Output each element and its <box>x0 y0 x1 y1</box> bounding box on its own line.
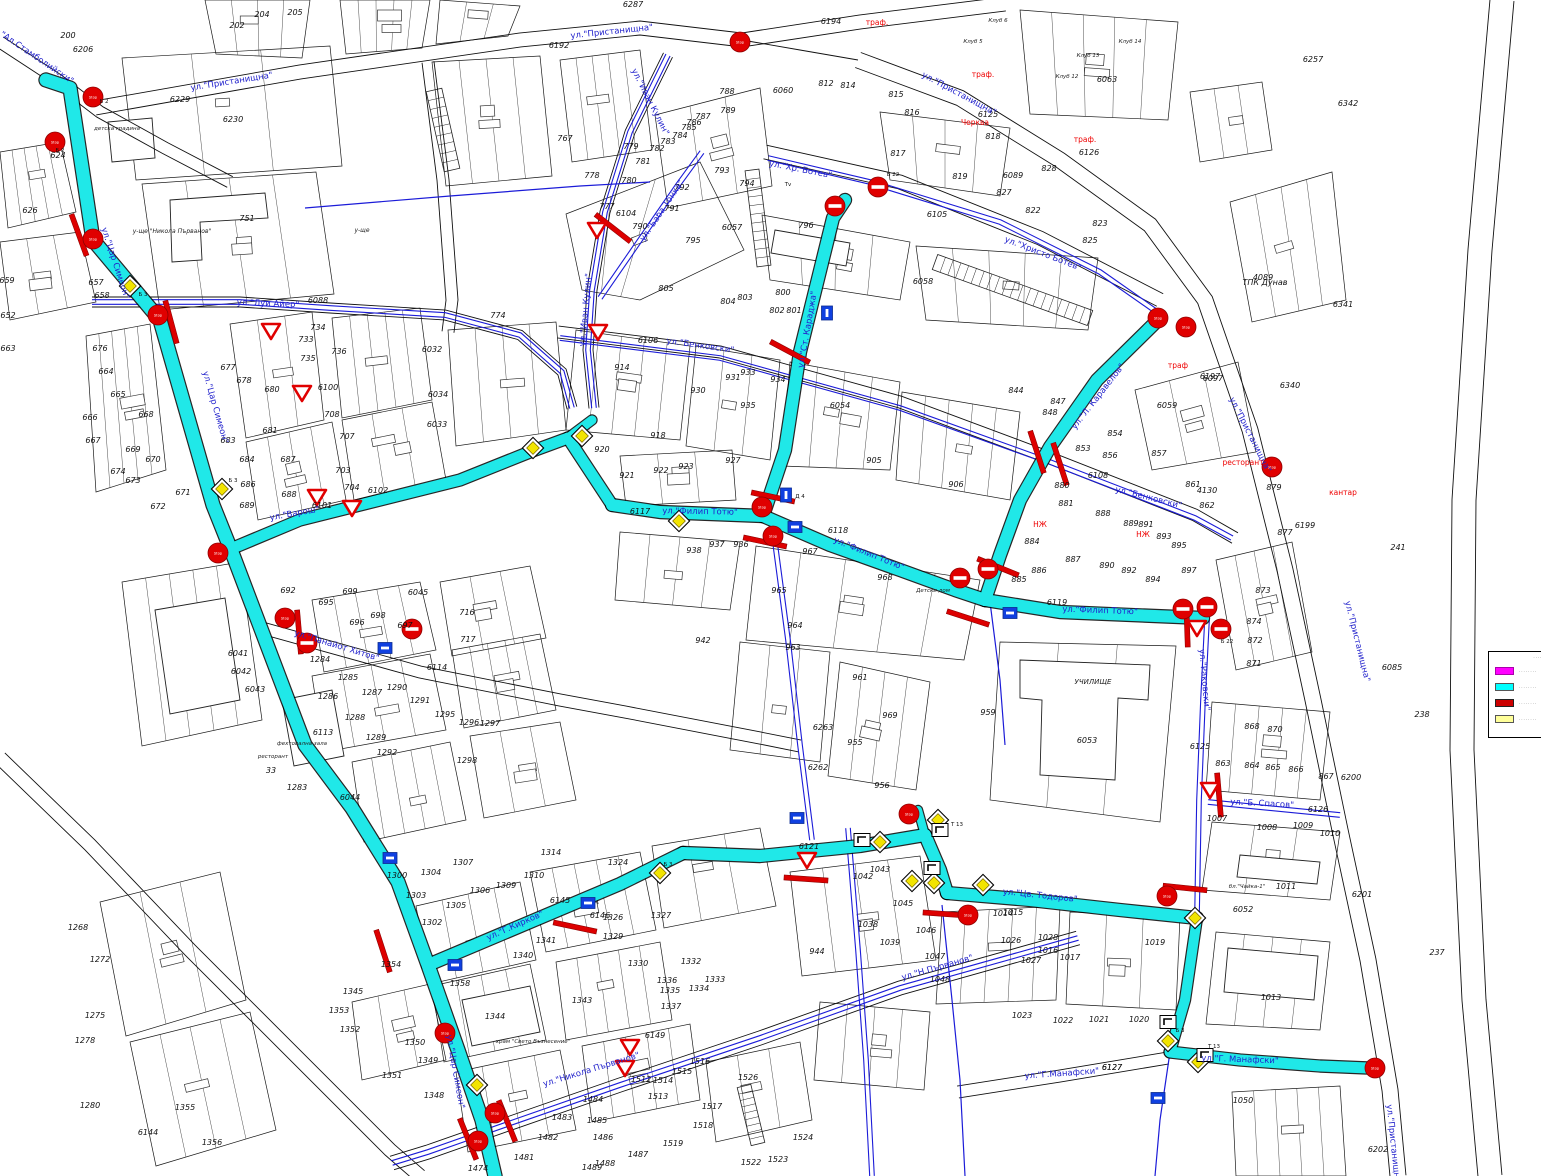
parcel-number: 6287 <box>623 0 644 9</box>
sign-code-label: Т 13 <box>950 822 964 828</box>
parcel-number: 6053 <box>1077 736 1097 745</box>
parcel-number: 1020 <box>1129 1015 1149 1024</box>
parcel-number: 1358 <box>450 979 470 988</box>
parcel-number: 697 <box>397 621 413 630</box>
parcel-number: 1332 <box>681 957 701 966</box>
parcel-number: 734 <box>310 323 325 332</box>
parcel-number: 1039 <box>880 938 900 947</box>
parcel-number: 6043 <box>245 685 265 694</box>
parcel-number: 668 <box>138 410 153 419</box>
red-annotation-label: траф. <box>1074 135 1097 144</box>
parcel-number: 6146 <box>590 911 610 920</box>
parcel-number: 1019 <box>1145 938 1165 947</box>
parcel-number: 1015 <box>1003 908 1023 917</box>
parcel-number: 1027 <box>1021 956 1042 965</box>
parcel-number: 969 <box>882 711 897 720</box>
parcel-number: 956 <box>874 781 889 790</box>
red-annotation-label: траф. <box>972 70 995 79</box>
parcel-number: 1016 <box>1038 946 1058 955</box>
parcel-number: 1517 <box>702 1102 723 1111</box>
parcel-number: 892 <box>1121 566 1136 575</box>
parcel-number: 6059 <box>1157 401 1177 410</box>
parcel-number: 684 <box>239 455 254 464</box>
legend-label: ········ <box>1519 717 1537 722</box>
parcel-number: 669 <box>125 445 140 454</box>
junction-info-sign-icon <box>924 862 940 875</box>
parcel-number: 914 <box>614 363 629 372</box>
parcel-number: 1513 <box>648 1092 668 1101</box>
parcel-number: 1008 <box>1257 823 1277 832</box>
parcel-number: 6262 <box>808 763 828 772</box>
street-name-label: ул."Раковски" <box>1196 649 1211 712</box>
svg-text:Stop: Stop <box>1154 316 1163 320</box>
svg-text:Stop: Stop <box>758 505 767 509</box>
parcel-number: 1314 <box>541 848 561 857</box>
building-footprint <box>1274 241 1294 254</box>
red-annotation-label: НЖ <box>1033 520 1047 529</box>
parcel-number: 716 <box>459 608 474 617</box>
building-footprint <box>587 94 610 105</box>
parcel-number: 857 <box>1151 449 1167 458</box>
parcel-number: 1343 <box>572 996 592 1005</box>
parcel-number: 863 <box>1215 759 1230 768</box>
building-footprint <box>1261 749 1287 759</box>
parcel-number: 931 <box>725 373 740 382</box>
parcel-number: 698 <box>370 611 385 620</box>
sign-code-label: В 22 <box>887 172 900 178</box>
legend-label: ········ <box>1519 685 1537 690</box>
parcel-number: 673 <box>125 476 140 485</box>
parcel-number: 827 <box>996 188 1012 197</box>
facility-label: у-ще "Никола Първанов" <box>132 228 212 235</box>
building-footprint <box>597 980 614 991</box>
parcel-number: 666 <box>82 413 97 422</box>
parcel-number: 6126 <box>1079 148 1099 157</box>
parcel-number: 1285 <box>338 673 358 682</box>
parcel-number: 6052 <box>1233 905 1253 914</box>
parcel-number: 955 <box>847 738 862 747</box>
svg-text:Stop: Stop <box>154 313 163 317</box>
parcel-number: 6206 <box>73 45 93 54</box>
parcel-number: 1341 <box>536 936 556 945</box>
parcel-number: 893 <box>1156 532 1171 541</box>
parcel-number: 670 <box>145 455 160 464</box>
parcel-number: 789 <box>720 106 735 115</box>
sign-code-label: Б 3 <box>1175 1028 1185 1034</box>
parcel-number: 1306 <box>470 886 490 895</box>
city-map-canvas[interactable]: StopStopStopStopStopStopStopStopStopStop… <box>0 0 1541 1176</box>
building-footprint <box>1281 1125 1303 1134</box>
building-footprint <box>955 444 972 455</box>
parcel-number: 1289 <box>366 733 386 742</box>
parcel-number: 6041 <box>228 649 248 658</box>
parcel-number: 1297 <box>480 719 501 728</box>
parcel-number: 802 <box>769 306 784 315</box>
parcel-number: 1482 <box>538 1133 558 1142</box>
svg-text:Stop: Stop <box>214 551 223 555</box>
parcel-number: 936 <box>733 540 748 549</box>
parcel-number: 1304 <box>421 868 441 877</box>
parcel-number: 4130 <box>1197 486 1217 495</box>
parcel-number: 873 <box>1255 586 1270 595</box>
parcel-number: 1310 <box>524 871 544 880</box>
legend-swatch-magenta <box>1495 667 1514 675</box>
parcel-number: 626 <box>22 206 37 215</box>
parcel-number: 1011 <box>1276 882 1296 891</box>
parcel-number: 805 <box>658 284 673 293</box>
parcel-number: 823 <box>1092 219 1107 228</box>
parcel-number: 6114 <box>427 663 447 672</box>
parcel-number: 848 <box>1042 408 1057 417</box>
parcel-number: 796 <box>798 221 813 230</box>
parcel-number: 1486 <box>593 1133 613 1142</box>
parcel-number: 828 <box>1041 164 1056 173</box>
building-footprint <box>378 10 402 21</box>
red-annotation-label: кантар <box>1329 488 1357 497</box>
parcel-number: 854 <box>1107 429 1122 438</box>
parcel-number: 964 <box>787 621 802 630</box>
parcel-number: 692 <box>280 586 295 595</box>
parcel-number: 874 <box>1246 617 1261 626</box>
facility-label: Клуб 6 <box>988 18 1008 24</box>
parcel-number: 1278 <box>75 1036 95 1045</box>
parcel-number: 933 <box>740 368 755 377</box>
parcel-number: 704 <box>344 483 359 492</box>
facility-label: фехтовална зала <box>277 741 328 747</box>
building-footprint <box>184 1079 209 1093</box>
parcel-number: 1350 <box>405 1038 425 1047</box>
parcel-number: 733 <box>298 335 313 344</box>
parcel-number: 6089 <box>1003 171 1023 180</box>
parcel-number: 6200 <box>1341 773 1361 782</box>
parcel-number: 817 <box>890 149 906 158</box>
parcel-number: 1275 <box>85 1011 105 1020</box>
parcel-block <box>100 872 246 1036</box>
parcel-number: 1010 <box>1320 829 1340 838</box>
parcel-number: 780 <box>621 176 636 185</box>
parcel-number: 689 <box>239 501 254 510</box>
parcel-number: 6121 <box>799 842 819 851</box>
parcel-number: 202 <box>229 21 244 30</box>
parcel-number: 1284 <box>310 655 330 664</box>
parcel-number: 905 <box>866 456 881 465</box>
parcel-number: 889 <box>1123 519 1138 528</box>
svg-text:Stop: Stop <box>1371 1066 1380 1070</box>
parcel-number: 6042 <box>231 667 251 676</box>
parcel-number: 707 <box>339 432 355 441</box>
junction-info-sign-icon <box>854 834 870 847</box>
parcel-number: 881 <box>1058 499 1073 508</box>
legend-item-route-magenta: ········ <box>1495 663 1541 679</box>
street-name-label: ул."Пристанищна" <box>190 71 274 94</box>
give-way-sign-icon <box>262 324 280 339</box>
parcel-number: 1336 <box>657 976 677 985</box>
parcel-number: 1017 <box>1060 953 1081 962</box>
parcel-number: 6202 <box>1368 1145 1388 1154</box>
building-footprint <box>711 134 729 149</box>
building-footprint <box>500 378 525 388</box>
parcel-number: 884 <box>1024 537 1039 546</box>
parcel-number: 1356 <box>202 1138 222 1147</box>
parcel-number: 814 <box>840 81 855 90</box>
parcel-number: 6192 <box>549 41 569 50</box>
parcel-block <box>556 942 672 1040</box>
red-annotation-label: Черква <box>961 118 989 127</box>
parcel-number: 1007 <box>1207 814 1228 823</box>
parcel-number: 816 <box>904 108 919 117</box>
parcel-number: 1300 <box>387 871 407 880</box>
parcel-number: 6145 <box>550 896 570 905</box>
street-name-label: ул."Пристанищна" <box>1342 600 1372 683</box>
building-footprint <box>160 954 184 967</box>
building-footprint <box>468 10 489 19</box>
parcel-number: 871 <box>1246 659 1261 668</box>
parcel-number: 1349 <box>418 1056 438 1065</box>
parcel-number: 804 <box>720 297 735 306</box>
parcel-number: 1327 <box>651 911 672 920</box>
parcel-number: 1324 <box>608 858 628 867</box>
parcel-number: 204 <box>254 10 269 19</box>
red-bar-closure-icon <box>553 920 597 934</box>
building-footprint <box>617 379 636 392</box>
parcel-number: 864 <box>1244 761 1259 770</box>
parcel-number: 6263 <box>813 723 833 732</box>
building-footprint <box>474 608 492 622</box>
sign-code-label: Тv <box>784 182 792 188</box>
parcel-number: 1292 <box>377 748 397 757</box>
parcel-number: 680 <box>264 385 279 394</box>
parcel-number: 6127 <box>1102 1063 1123 1072</box>
parcel-number: 4089 <box>1253 273 1273 282</box>
parcel-number: 963 <box>785 643 800 652</box>
parcel-number: 1512 <box>631 1075 651 1084</box>
parcel-number: 920 <box>594 445 609 454</box>
give-way-sign-icon <box>798 853 816 868</box>
parcel-number: 695 <box>318 598 333 607</box>
parcel-number: 1334 <box>689 984 709 993</box>
sign-code-label: Б 22 <box>1221 639 1234 645</box>
building-footprint <box>480 105 495 117</box>
svg-text:Stop: Stop <box>89 95 98 99</box>
facility-label: Клуб 14 <box>1119 39 1142 45</box>
parcel-number: 6118 <box>828 526 848 535</box>
parcel-number: 819 <box>952 172 967 181</box>
building-footprint <box>664 570 683 579</box>
parcel-number: 6044 <box>340 793 360 802</box>
parcel-number: 6199 <box>1295 521 1315 530</box>
map-legend: ······ ········ ········ ········ ······… <box>1488 651 1541 738</box>
parcel-number: 1354 <box>381 960 401 969</box>
parcel-number: 895 <box>1171 541 1186 550</box>
parcel-number: 777 <box>599 202 615 211</box>
parcel-number: 708 <box>324 410 339 419</box>
parcel-number: 930 <box>690 386 705 395</box>
street-name-label: ул."Луи Айер" <box>237 298 300 310</box>
parcel-number: 803 <box>737 293 752 302</box>
parcel-number: 927 <box>725 456 741 465</box>
sign-code-label: Д 4 <box>795 494 805 500</box>
building-footprint <box>28 169 45 180</box>
building-footprint <box>1109 965 1125 977</box>
parcel-number: 1303 <box>406 891 426 900</box>
building-footprint <box>508 1090 527 1102</box>
parcel-number: 1518 <box>693 1121 713 1130</box>
parcel-number: 778 <box>584 171 599 180</box>
legend-swatch-cyan <box>1495 683 1514 691</box>
street-name-label: ул."Цар Симеон" <box>200 370 230 445</box>
building-footprint <box>232 243 253 255</box>
parcel-block <box>706 1042 812 1142</box>
sign-code-label: Б 2 <box>99 99 108 105</box>
parcel-number: 1348 <box>424 1091 444 1100</box>
parcel-number: 890 <box>1099 561 1114 570</box>
parcel-number: 676 <box>92 344 107 353</box>
parcel-number: 844 <box>1008 386 1023 395</box>
red-annotation-label: траф <box>1168 361 1188 370</box>
parcel-number: 822 <box>1025 206 1040 215</box>
parcel-number: 937 <box>709 540 725 549</box>
parcel-block <box>122 46 342 180</box>
parcel-number: 1344 <box>485 1012 505 1021</box>
parcel-number: 891 <box>1138 520 1153 529</box>
building-footprint <box>514 769 537 783</box>
svg-text:Stop: Stop <box>1163 894 1172 898</box>
facility-label: УЧИЛИЩЕ <box>1075 678 1112 686</box>
parcel-number: 935 <box>740 401 755 410</box>
facility-label: Клуб 13 <box>1077 53 1100 59</box>
parcel-number: 800 <box>775 288 790 297</box>
parcel-number: 1272 <box>90 955 110 964</box>
parcel-number: 784 <box>672 131 687 140</box>
labels-layer: 2006206202204205623062296246267516287619… <box>0 0 1446 1176</box>
facility-label: храм "Свето Възнесение" <box>495 1039 570 1045</box>
building-footprint <box>840 413 862 427</box>
street-name-label: ул."Хр. Ботев" <box>768 159 833 181</box>
parcel-number: 1047 <box>925 952 946 961</box>
parcel-number: 1309 <box>496 881 516 890</box>
parcel-number: 1302 <box>422 918 442 927</box>
parcel-number: 801 <box>786 306 801 315</box>
building-footprint <box>772 705 787 714</box>
parcel-number: 774 <box>490 311 505 320</box>
parcel-number: 1474 <box>468 1164 488 1173</box>
red-bar-closure-icon <box>1051 442 1069 485</box>
building-footprint <box>359 626 382 638</box>
parcel-number: 1484 <box>583 1095 603 1104</box>
building-footprint <box>382 25 401 33</box>
parcel-number: 678 <box>236 376 251 385</box>
building-footprint <box>1180 405 1204 421</box>
parcel-number: 751 <box>239 214 254 223</box>
parcel-number: 853 <box>1075 444 1090 453</box>
parcel-number: 659 <box>0 276 15 285</box>
facility-label: Детски дом <box>915 588 950 594</box>
parcel-number: 967 <box>802 547 818 556</box>
parcel-number: 767 <box>557 134 573 143</box>
parcel-number: 1351 <box>382 1071 402 1080</box>
parcel-number: 652 <box>0 311 15 320</box>
parcel-number: 1298 <box>457 756 477 765</box>
parcel-number: 1307 <box>453 858 474 867</box>
parcel-number: 1286 <box>318 692 338 701</box>
legend-label: ········ <box>1519 669 1537 674</box>
parcel-number: 1009 <box>1293 821 1313 830</box>
building-footprint <box>710 148 734 161</box>
building-footprint <box>29 277 52 291</box>
parcel-number: 237 <box>1429 948 1445 957</box>
parcel-number: 1353 <box>329 1006 349 1015</box>
parcel-number: 1330 <box>628 959 648 968</box>
parcel-number: 6230 <box>223 115 243 124</box>
parcel-number: 879 <box>1266 483 1281 492</box>
sign-code-label: Б 2 <box>55 148 64 154</box>
parcel-number: 671 <box>175 488 190 497</box>
parcel-number: 1028 <box>1038 933 1058 942</box>
parcel-number: 894 <box>1145 575 1160 584</box>
red-bar-closure-icon <box>946 609 989 627</box>
street-name-label: ул."Г. Манафски" <box>1201 1054 1279 1067</box>
parcel-number: 1023 <box>1012 1011 1032 1020</box>
street-name-label: ул."Филип Тотю" <box>662 506 738 517</box>
parcel-number: 1516 <box>690 1057 710 1066</box>
parcel-number: 6058 <box>913 277 933 286</box>
building-footprint <box>392 1016 416 1032</box>
parcel-number: 793 <box>714 166 729 175</box>
parcel-number: 1046 <box>916 926 936 935</box>
parcel-number: 959 <box>980 708 995 717</box>
parcel-number: 6125 <box>1190 742 1210 751</box>
parcel-number: 1481 <box>514 1153 534 1162</box>
parcel-number: 6229 <box>170 95 190 104</box>
parcel-number: 794 <box>739 179 754 188</box>
parcel-number: 965 <box>771 586 786 595</box>
svg-text:Stop: Stop <box>736 40 745 44</box>
parcel-number: 918 <box>650 431 665 440</box>
parcel-number: 658 <box>94 291 109 300</box>
building-footprint <box>273 367 294 378</box>
parcel-number: 6034 <box>428 390 448 399</box>
parcel-number: 1022 <box>1053 1016 1073 1025</box>
building-footprint <box>1185 420 1204 432</box>
parcel-number: 847 <box>1050 397 1066 406</box>
parcel-number: 6060 <box>773 86 793 95</box>
parcel-number: 6113 <box>313 728 333 737</box>
parcel-number: 6100 <box>318 383 338 392</box>
red-bar-closure-icon <box>1215 773 1224 817</box>
parcel-number: 1021 <box>1089 1015 1109 1024</box>
parcel-number: 906 <box>948 480 963 489</box>
legend-header: ······ <box>1495 655 1541 663</box>
parcel-number: 923 <box>678 462 693 471</box>
parcel-number: 825 <box>1082 236 1097 245</box>
building-footprint <box>365 356 388 366</box>
building-footprint <box>394 442 412 456</box>
parcel-number: 6144 <box>138 1128 158 1137</box>
parcel-number: 736 <box>331 347 346 356</box>
parcel-number: 1514 <box>653 1076 673 1085</box>
parcel-number: 1345 <box>343 987 363 996</box>
parcel-number: 6340 <box>1280 381 1300 390</box>
facility-label: детска градина <box>93 126 141 132</box>
parcel-number: 868 <box>1244 722 1259 731</box>
junction-info-sign-icon <box>932 824 948 837</box>
parcel-number: 897 <box>1181 566 1197 575</box>
building-footprint <box>371 434 395 446</box>
red-annotation-label: траф. <box>866 18 889 27</box>
parcel-number: 788 <box>719 87 734 96</box>
facility-label: Клуб 12 <box>1056 74 1079 80</box>
parcel-number: 1515 <box>672 1067 692 1076</box>
